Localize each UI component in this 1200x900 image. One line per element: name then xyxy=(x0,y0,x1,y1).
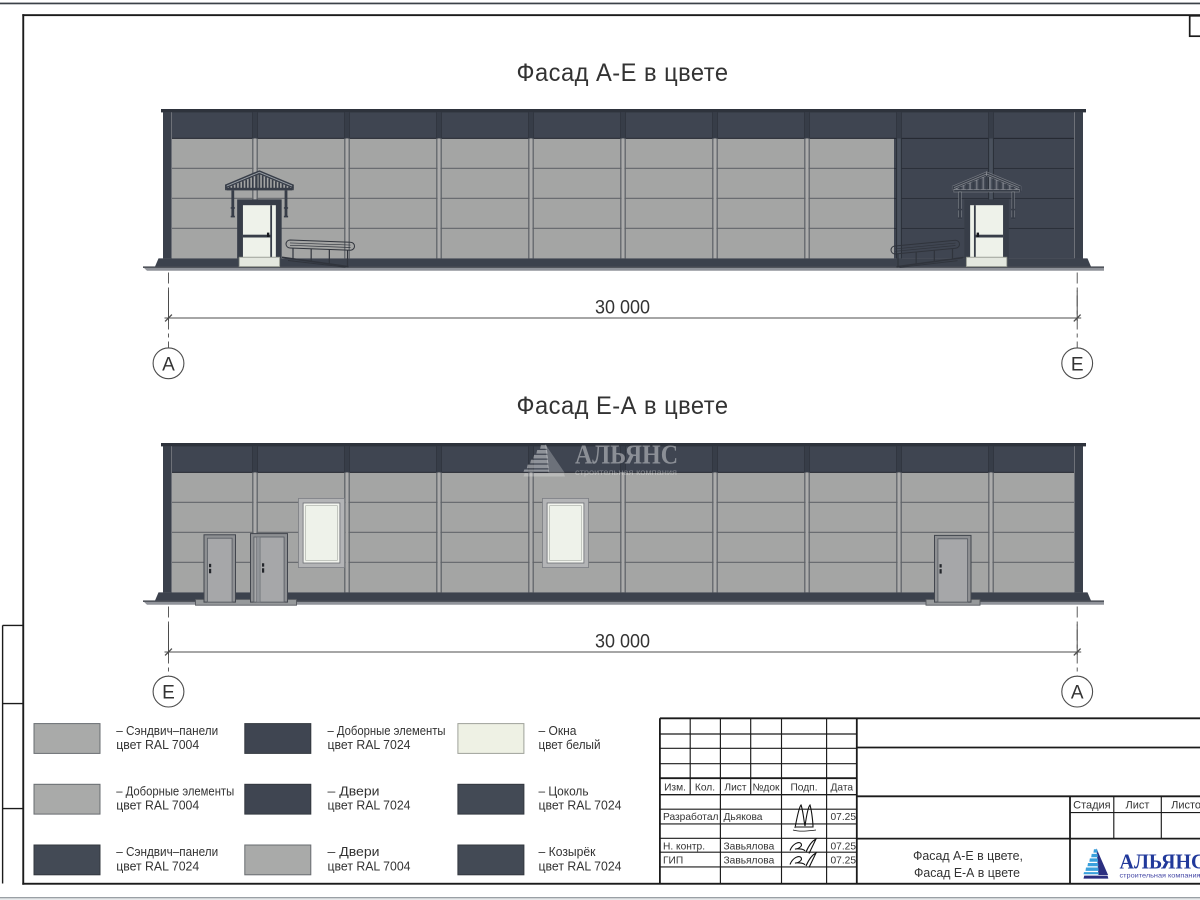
svg-text:строительная компания: строительная компания xyxy=(575,467,677,477)
svg-text:– Двери: – Двери xyxy=(328,784,380,799)
svg-text:– Доборные элементы: – Доборные элементы xyxy=(328,723,446,738)
svg-text:Подп.: Подп. xyxy=(790,783,817,794)
svg-text:цвет белый: цвет белый xyxy=(539,737,601,752)
svg-text:ГИП: ГИП xyxy=(663,856,683,867)
svg-text:№док: №док xyxy=(753,783,781,794)
svg-text:07.25: 07.25 xyxy=(831,841,857,852)
svg-text:Дата: Дата xyxy=(831,783,854,794)
svg-text:АЛЬЯНС: АЛЬЯНС xyxy=(1120,850,1200,874)
svg-text:07.25: 07.25 xyxy=(831,812,857,823)
svg-text:– Окна: – Окна xyxy=(539,723,578,738)
svg-text:30 000: 30 000 xyxy=(595,297,650,319)
svg-text:цвет RAL 7024: цвет RAL 7024 xyxy=(328,737,411,752)
svg-text:цвет RAL 7024: цвет RAL 7024 xyxy=(539,858,622,873)
svg-text:Фасад А-Е в цвете,: Фасад А-Е в цвете, xyxy=(913,849,1023,863)
svg-text:Фасад Е-А в цвете: Фасад Е-А в цвете xyxy=(914,866,1020,880)
svg-text:Изм.: Изм. xyxy=(664,783,686,794)
svg-text:А: А xyxy=(1071,683,1084,704)
svg-text:Фасад Е-А в цвете: Фасад Е-А в цвете xyxy=(517,392,729,420)
svg-text:Е: Е xyxy=(162,683,175,704)
svg-text:цвет RAL 7004: цвет RAL 7004 xyxy=(328,858,411,873)
svg-text:– Доборные элементы: – Доборные элементы xyxy=(116,784,234,799)
svg-text:цвет RAL 7024: цвет RAL 7024 xyxy=(116,858,199,873)
svg-text:Завьялова: Завьялова xyxy=(724,856,775,867)
svg-text:Е: Е xyxy=(1071,354,1084,375)
svg-text:07.25: 07.25 xyxy=(831,856,857,867)
svg-text:– Двери: – Двери xyxy=(328,844,380,859)
svg-text:Дьякова: Дьякова xyxy=(724,812,763,823)
svg-text:цвет RAL 7024: цвет RAL 7024 xyxy=(328,798,411,813)
svg-text:АЛЬЯНС: АЛЬЯНС xyxy=(575,440,678,470)
svg-text:Лист: Лист xyxy=(724,783,746,794)
svg-text:цвет RAL 7024: цвет RAL 7024 xyxy=(539,798,622,813)
svg-text:цвет RAL 7004: цвет RAL 7004 xyxy=(116,798,199,813)
svg-text:цвет RAL 7004: цвет RAL 7004 xyxy=(116,737,199,752)
svg-text:Стадия: Стадия xyxy=(1073,800,1111,812)
svg-text:А: А xyxy=(162,354,175,375)
svg-text:– Сэндвич–панели: – Сэндвич–панели xyxy=(116,723,218,738)
svg-text:Кол.: Кол. xyxy=(695,783,715,794)
svg-text:строительная компания: строительная компания xyxy=(1120,873,1200,880)
svg-text:Н. контр.: Н. контр. xyxy=(663,841,705,852)
svg-text:– Сэндвич–панели: – Сэндвич–панели xyxy=(116,844,218,859)
svg-text:Завьялова: Завьялова xyxy=(724,841,775,852)
svg-text:– Козырёк: – Козырёк xyxy=(539,844,596,859)
svg-text:Листов: Листов xyxy=(1171,800,1200,812)
svg-text:Разработал: Разработал xyxy=(663,811,719,823)
svg-text:– Цоколь: – Цоколь xyxy=(539,784,589,799)
svg-text:Фасад А-Е в цвете: Фасад А-Е в цвете xyxy=(517,59,729,87)
svg-text:Лист: Лист xyxy=(1126,800,1150,812)
svg-text:30 000: 30 000 xyxy=(595,631,650,653)
